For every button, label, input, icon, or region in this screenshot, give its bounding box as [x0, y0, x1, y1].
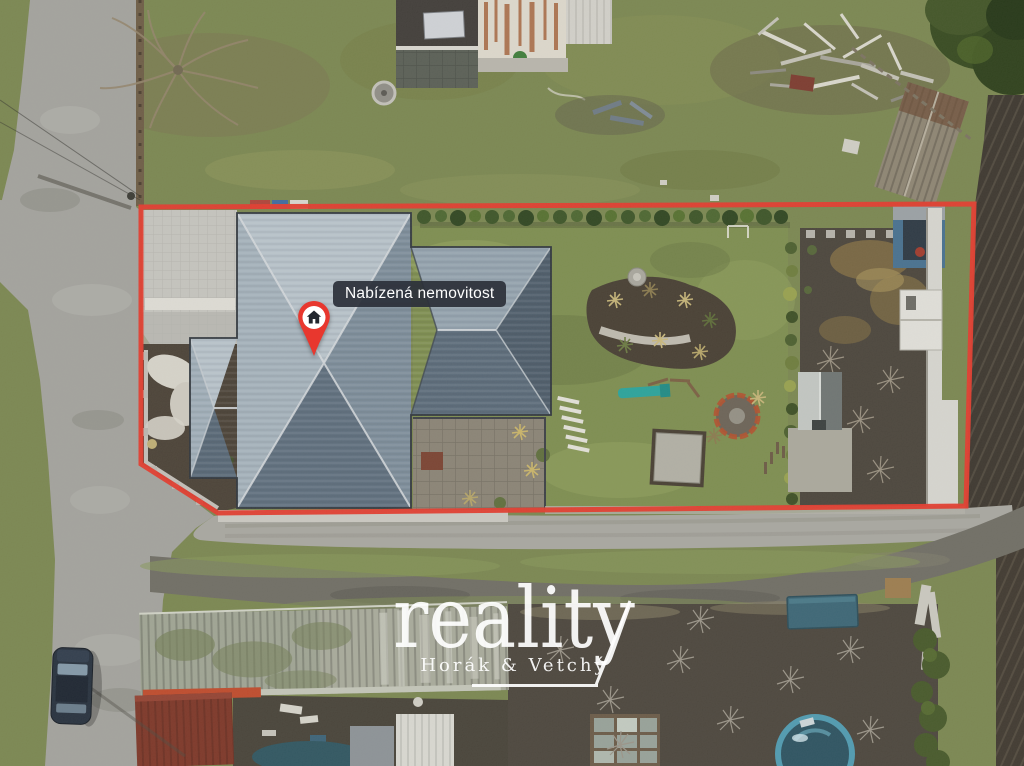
film-grain: [0, 0, 1024, 766]
house-pin-icon: [297, 300, 331, 358]
location-pin: [297, 300, 331, 358]
property-label: Nabízená nemovitost: [333, 281, 506, 307]
aerial-listing-photo: Nabízená nemovitost reality Horák & Vetc…: [0, 0, 1024, 766]
aerial-scene: [0, 0, 1024, 766]
